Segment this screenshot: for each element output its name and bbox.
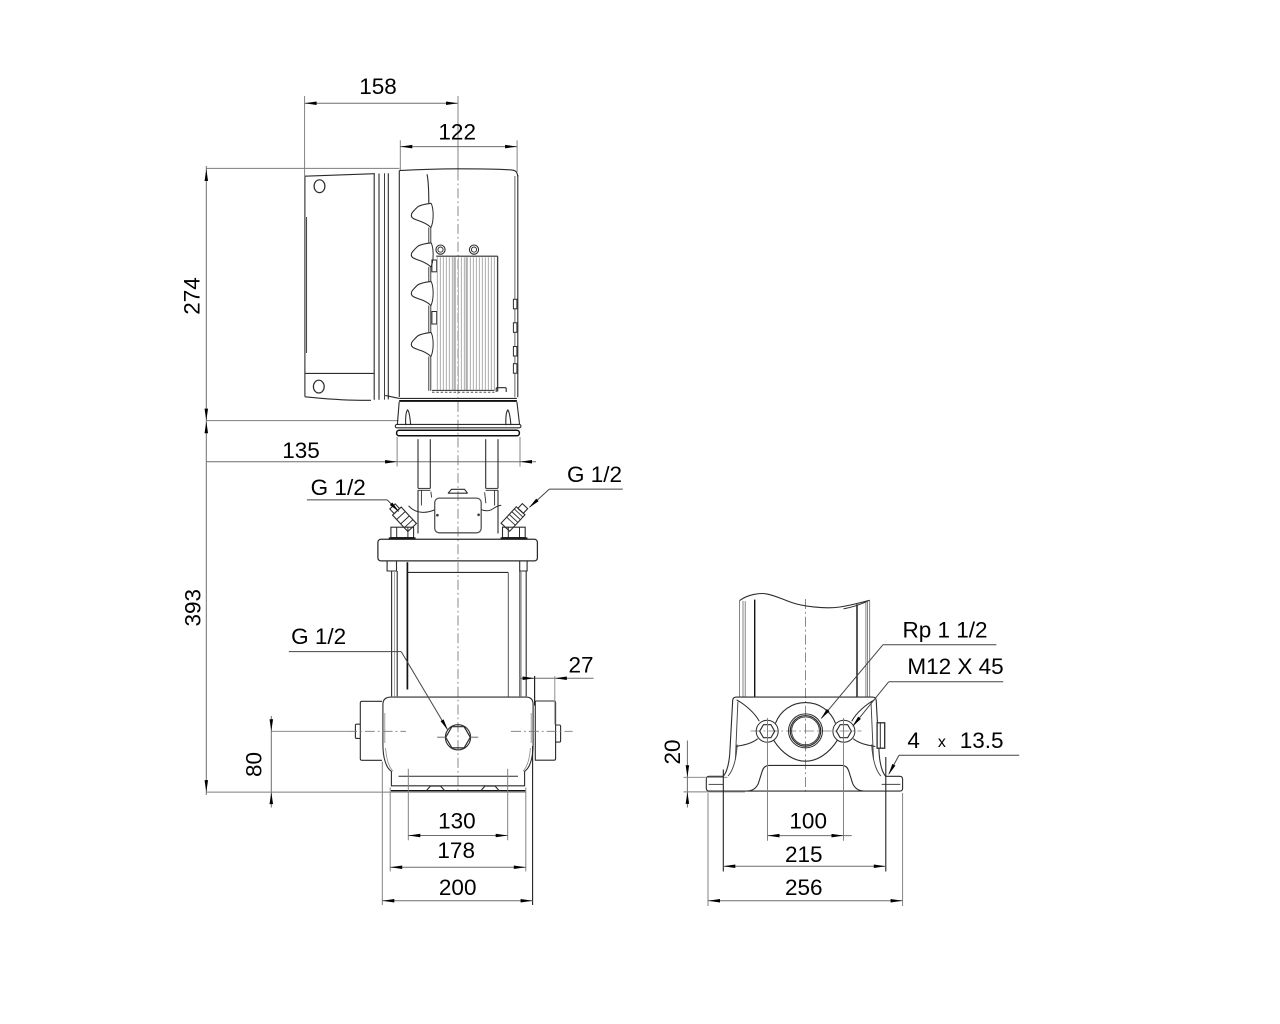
svg-text:Rp 1 1/2: Rp 1 1/2 [902,617,987,642]
svg-text:G 1/2: G 1/2 [567,462,622,487]
svg-text:M12 X 45: M12 X 45 [907,654,1003,679]
svg-text:256: 256 [785,875,823,900]
svg-text:135: 135 [282,438,320,463]
svg-text:100: 100 [789,809,827,834]
svg-text:20: 20 [660,739,685,764]
svg-text:G 1/2: G 1/2 [311,475,366,500]
svg-text:x: x [938,734,946,751]
svg-text:27: 27 [568,653,593,678]
svg-text:215: 215 [785,842,823,867]
svg-text:13.5: 13.5 [960,728,1004,753]
svg-text:200: 200 [439,875,477,900]
svg-text:158: 158 [359,74,397,99]
svg-text:G 1/2: G 1/2 [291,624,346,649]
svg-text:178: 178 [437,838,475,863]
svg-text:130: 130 [438,809,476,834]
svg-text:80: 80 [242,752,267,777]
svg-text:122: 122 [438,119,476,144]
svg-text:4: 4 [907,728,920,753]
svg-text:393: 393 [181,589,206,627]
svg-text:274: 274 [180,277,205,315]
